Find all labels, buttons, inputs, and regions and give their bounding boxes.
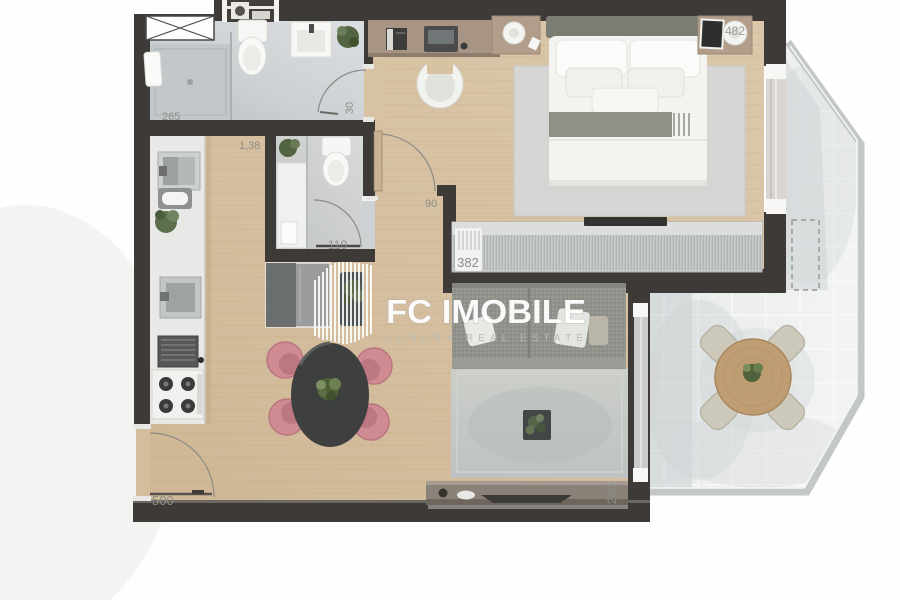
svg-text:382: 382 [457,255,479,270]
svg-text:90: 90 [425,198,437,210]
svg-text:500: 500 [152,493,174,508]
svg-text:1,38: 1,38 [239,140,260,152]
svg-text:110: 110 [328,238,347,252]
svg-text:30: 30 [344,102,356,114]
svg-text:482: 482 [725,24,745,38]
svg-text:265: 265 [162,111,180,123]
svg-text:280: 280 [605,484,619,504]
svg-text:FC IMOBILE: FC IMOBILE [386,293,586,330]
